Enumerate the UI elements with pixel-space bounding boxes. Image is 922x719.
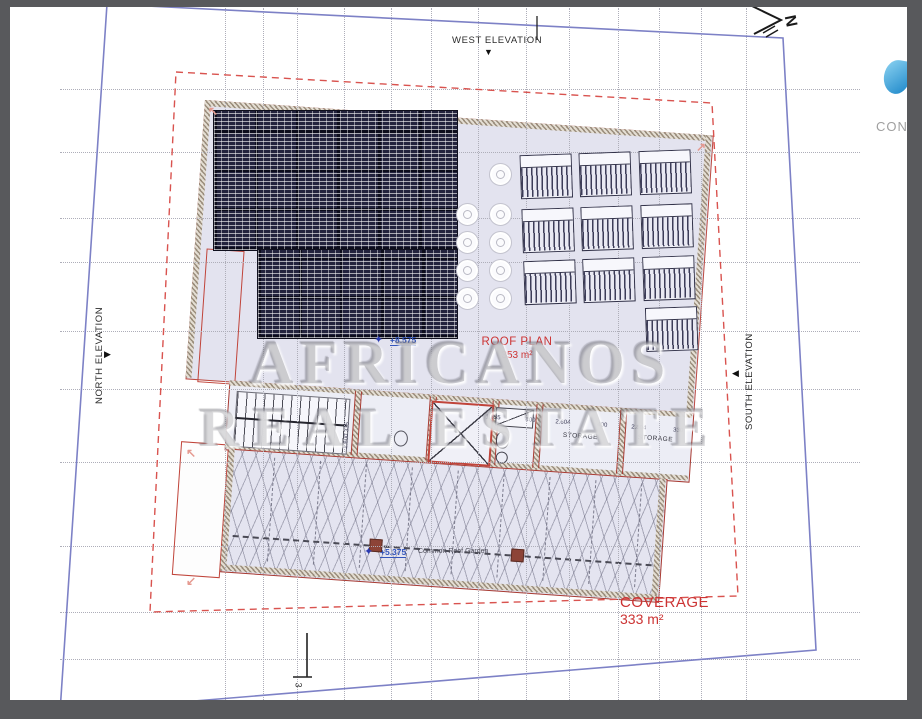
frame-left (0, 0, 10, 719)
site-lines: N (0, 0, 922, 719)
logo-partial-text: CON (876, 119, 908, 134)
north-arrow-icon: N (752, 6, 800, 37)
roof-plan-area: 353 m² (462, 350, 572, 361)
west-elevation-marker-icon: ▼ (484, 47, 493, 57)
south-elevation-marker-icon: ◀ (732, 368, 739, 379)
slope-arrow-icon: ↙ (186, 574, 196, 588)
coverage-label: COVERAGE (620, 594, 709, 611)
coverage-area: 333 m² (620, 611, 664, 627)
level-garden-text: +5.375 (380, 547, 406, 558)
level-marker-icon: ✦ (364, 545, 373, 558)
setback-dashed-line (150, 72, 738, 612)
level-upper-text: +8.575 (390, 335, 416, 346)
north-arrow-label: N (781, 14, 800, 29)
roof-plan-title: ROOF PLAN (462, 336, 572, 348)
slope-arrow-icon: ↗ (696, 140, 706, 154)
frame-right (907, 0, 922, 719)
garden-label: Common Roof Garden (418, 548, 488, 555)
level-marker-icon: ✦ (374, 333, 383, 346)
corner-mark-label: 3 (294, 682, 304, 687)
slope-arrow-icon: ↖ (208, 104, 218, 118)
north-elevation-marker-icon: ▶ (104, 349, 111, 360)
drawing-canvas: STORAGE STORAGE 1.855 400 2.604 400 2.80… (0, 0, 922, 719)
slope-arrow-icon: ↖ (186, 446, 196, 460)
south-elevation-label: SOUTH ELEVATION (744, 318, 755, 430)
frame-top (0, 0, 922, 7)
west-elevation-label: WEST ELEVATION (452, 35, 542, 46)
frame-bottom (0, 700, 922, 719)
